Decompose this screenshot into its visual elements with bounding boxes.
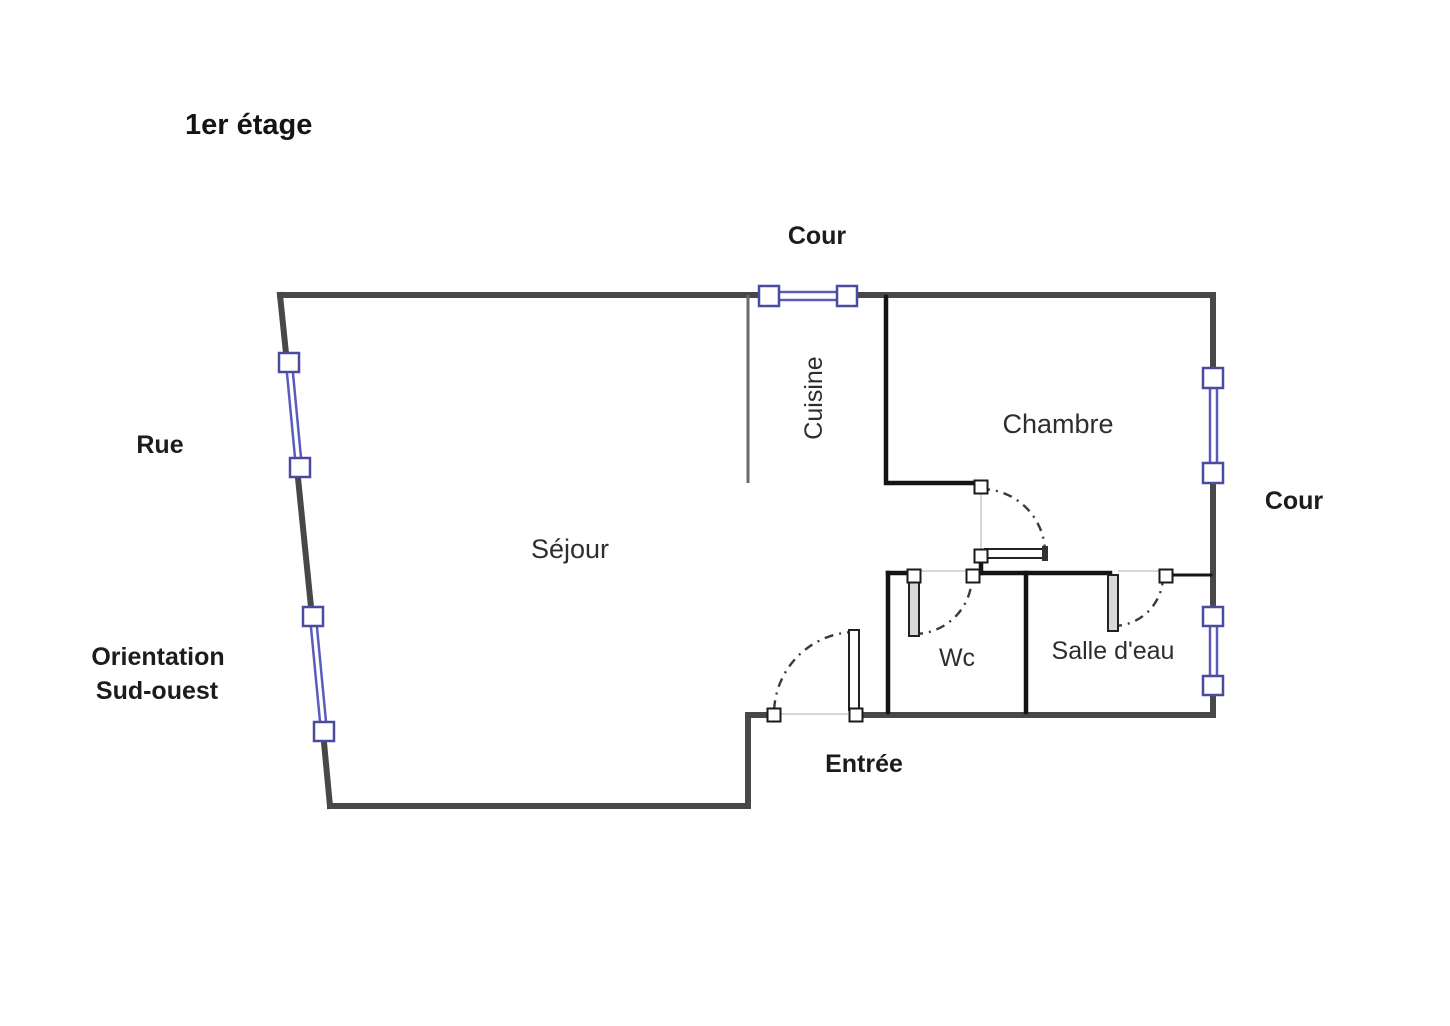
chambre-door-leaf xyxy=(985,546,1048,561)
room-label-wc: Wc xyxy=(939,644,975,672)
entree-door-arc xyxy=(774,632,856,714)
chambre-door-hinge-top xyxy=(975,481,988,494)
window-right-lower xyxy=(1203,607,1223,695)
wc-door-hinge-left xyxy=(908,570,921,583)
window-top-cour xyxy=(759,286,857,306)
room-label-cuisine: Cuisine xyxy=(800,356,828,439)
chambre-left-wall xyxy=(886,297,975,483)
salledeau-door-arc xyxy=(1113,576,1163,626)
label-rue: Rue xyxy=(136,431,183,459)
entree-door-leaf xyxy=(849,630,859,710)
entree-door-hinge-left xyxy=(768,709,781,722)
exterior-wall-left-segment-3 xyxy=(323,732,330,806)
page-title: 1er étage xyxy=(185,109,312,141)
wc-door-arc xyxy=(914,576,972,634)
label-entree: Entrée xyxy=(825,750,903,778)
chambre-door-arc xyxy=(981,489,1045,553)
room-label-sejour: Séjour xyxy=(531,534,609,564)
exterior-wall-entrance-stub-and-sejour-bottom xyxy=(330,715,772,806)
window-right-upper xyxy=(1203,368,1223,483)
exterior-wall-left-segment-2 xyxy=(297,468,312,617)
label-orientation-line2: Sud-ouest xyxy=(96,677,219,705)
chambre-door-hinge-bottom xyxy=(975,550,988,563)
wc-door-leaf xyxy=(909,578,919,636)
label-orientation-line1: Orientation xyxy=(91,643,224,671)
entree-door-hinge-right xyxy=(850,709,863,722)
label-cour-top: Cour xyxy=(788,222,847,250)
window-left-lower xyxy=(303,607,334,741)
room-label-chambre: Chambre xyxy=(1002,409,1113,439)
salledeau-door-leaf xyxy=(1108,575,1118,631)
wc-door-hinge-right xyxy=(967,570,980,583)
room-label-salle-deau: Salle d'eau xyxy=(1052,637,1175,665)
floor-plan-svg: 1er étage Cour Cour Rue Orientation Sud-… xyxy=(0,0,1450,1026)
salledeau-door-hinge-right xyxy=(1160,570,1173,583)
floor-plan-page: 1er étage Cour Cour Rue Orientation Sud-… xyxy=(0,0,1450,1026)
label-cour-right: Cour xyxy=(1265,487,1324,515)
window-left-upper xyxy=(279,353,310,477)
